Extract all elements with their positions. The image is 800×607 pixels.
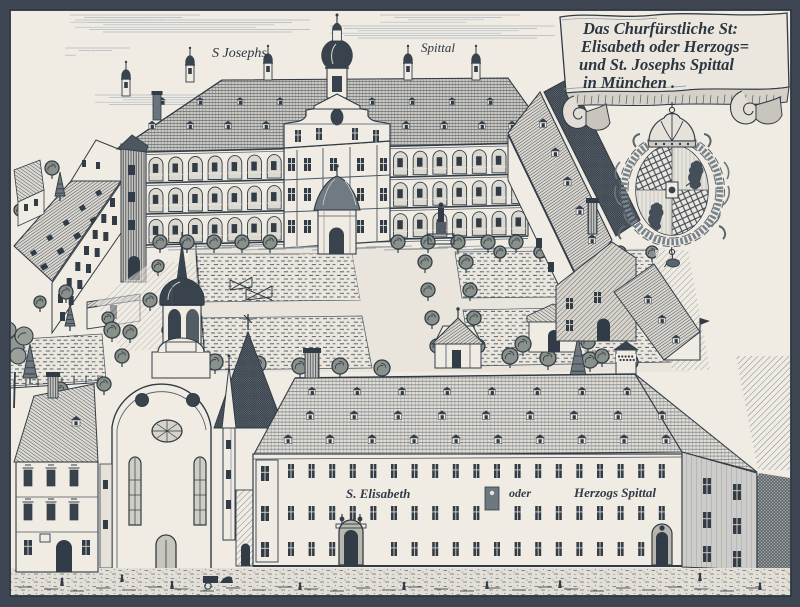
svg-text:oder: oder [509, 486, 531, 500]
svg-text:S Josephs: S Josephs [212, 46, 267, 61]
svg-text:Spittal: Spittal [421, 40, 455, 55]
svg-text:in München .: in München . [583, 73, 675, 92]
svg-text:Das Churfürstliche St:: Das Churfürstliche St: [582, 19, 738, 38]
svg-text:Herzogs Spittal: Herzogs Spittal [573, 485, 656, 500]
svg-text:und St. Josephs Spittal: und St. Josephs Spittal [579, 55, 734, 74]
svg-text:Elisabeth oder Herzogs=: Elisabeth oder Herzogs= [580, 37, 749, 56]
svg-text:S. Elisabeth: S. Elisabeth [346, 486, 410, 501]
